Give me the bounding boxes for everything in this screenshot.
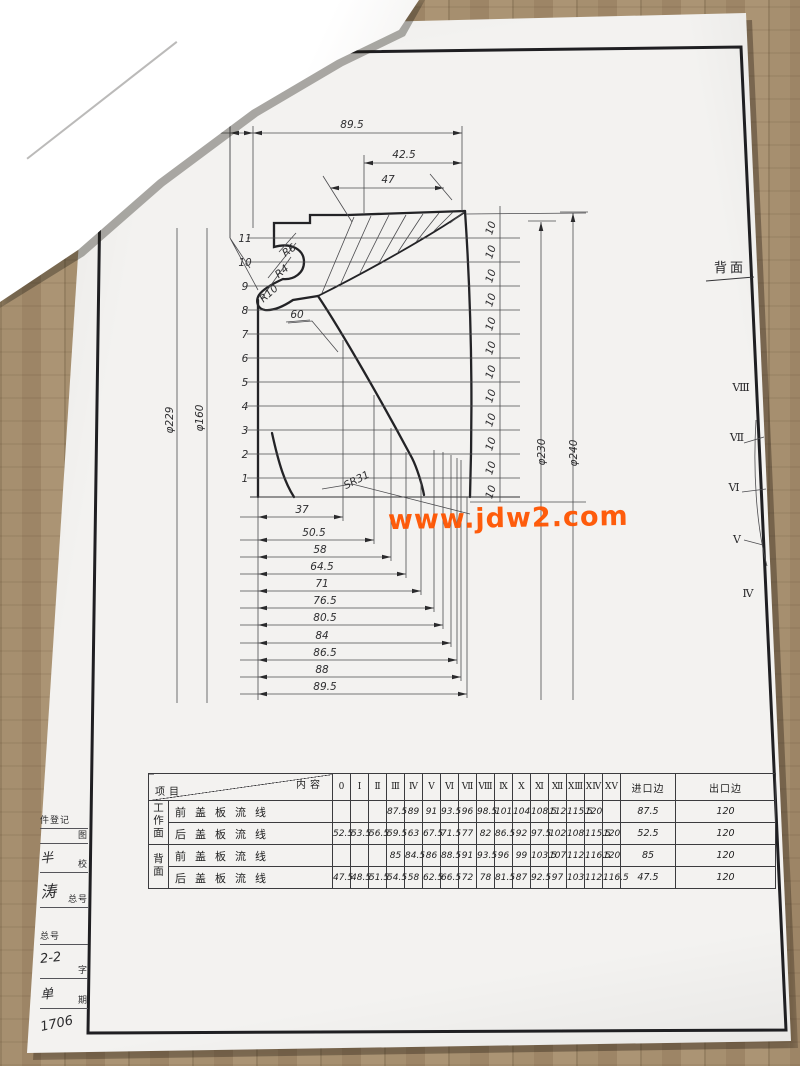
drawing-line bbox=[360, 215, 389, 273]
dimension-arrow bbox=[258, 658, 267, 663]
dimension-arrow bbox=[258, 515, 267, 520]
row-group-label: 工作面 bbox=[149, 801, 169, 845]
drawing-text: 5 bbox=[242, 377, 249, 389]
drawing-text: 2 bbox=[242, 449, 249, 461]
stamp-item: 件登记 bbox=[40, 817, 88, 829]
table-cell: 120 bbox=[676, 845, 776, 867]
table-cell bbox=[351, 845, 369, 867]
table-cell: 91 bbox=[423, 801, 441, 823]
drawing-text: 84 bbox=[315, 630, 328, 642]
stamp-item: 期 bbox=[40, 997, 88, 1009]
angle-label: 60 bbox=[290, 309, 304, 321]
table-cell: 52.5 bbox=[621, 823, 676, 845]
drawing-text: 42.5 bbox=[392, 149, 416, 161]
table-cell: 99 bbox=[513, 845, 531, 867]
stamp-item: 字 bbox=[40, 967, 88, 979]
dimension-arrow bbox=[435, 186, 444, 191]
drawing-text: 10 bbox=[483, 484, 499, 501]
drawing-text: φ240 bbox=[568, 439, 580, 466]
column-header: ⅩⅣ bbox=[585, 774, 603, 801]
column-header: Ⅺ bbox=[531, 774, 549, 801]
table-cell bbox=[369, 801, 387, 823]
drawing-text: φ229 bbox=[164, 406, 176, 433]
table-cell: 88.5 bbox=[441, 845, 459, 867]
back-face-label: 背面 bbox=[714, 261, 746, 276]
drawing-text: φ230 bbox=[536, 438, 548, 465]
drawing-text: 89.5 bbox=[340, 119, 364, 131]
column-header: 0 bbox=[333, 774, 351, 801]
table-cell: 78 bbox=[477, 867, 495, 889]
table-cell: 108 bbox=[567, 823, 585, 845]
dimension-arrow bbox=[258, 555, 267, 560]
table-cell: 84.5 bbox=[405, 845, 423, 867]
table-cell: 66.5 bbox=[441, 867, 459, 889]
table-cell: 93.5 bbox=[477, 845, 495, 867]
dimension-arrow bbox=[382, 555, 391, 560]
table-cell: 59.5 bbox=[387, 823, 405, 845]
drawing-text: 10 bbox=[483, 292, 499, 309]
drawing-text: 50.5 bbox=[302, 527, 326, 539]
table-cell: 97.5 bbox=[531, 823, 549, 845]
drawing-text: 58 bbox=[313, 544, 327, 556]
table-cell: 116.5 bbox=[585, 845, 603, 867]
drawing-text: 89.5 bbox=[313, 681, 337, 693]
table-cell: 107 bbox=[549, 845, 567, 867]
drawing-text: 1 bbox=[242, 473, 249, 485]
column-header: 进口边 bbox=[621, 774, 676, 801]
table-cell: 93.5 bbox=[441, 801, 459, 823]
table-cell: 97 bbox=[549, 867, 567, 889]
table-cell: 53.5 bbox=[351, 823, 369, 845]
table-cell: 47.5 bbox=[333, 867, 351, 889]
column-header: Ⅷ bbox=[477, 774, 495, 801]
dimension-arrow bbox=[425, 606, 434, 611]
dimension-arrow bbox=[539, 222, 544, 231]
drawing-text: 10 bbox=[483, 436, 499, 453]
drawing-text: 10 bbox=[483, 316, 499, 333]
dimension-arrow bbox=[253, 131, 262, 136]
drawing-text: 71 bbox=[315, 578, 328, 590]
table-cell: 71.5 bbox=[441, 823, 459, 845]
table-row: 后盖板流线52.553.556.559.56367.571.5778286.59… bbox=[149, 823, 776, 845]
table-cell bbox=[603, 801, 621, 823]
row-label: 后盖板流线 bbox=[169, 823, 333, 845]
table-cell: 120 bbox=[676, 823, 776, 845]
drawing-text: 10 bbox=[483, 364, 499, 381]
table-cell: 120 bbox=[585, 801, 603, 823]
drawing-text: 10 bbox=[483, 460, 499, 477]
drawing-text: Ⅴ bbox=[732, 533, 742, 546]
table-cell: 91 bbox=[459, 845, 477, 867]
table-cell: 96 bbox=[495, 845, 513, 867]
table-cell bbox=[369, 845, 387, 867]
dimension-arrow bbox=[258, 692, 267, 697]
column-header: Ⅵ bbox=[441, 774, 459, 801]
drawing-text: Ⅵ bbox=[727, 481, 739, 494]
drawing-text: 10 bbox=[483, 388, 499, 405]
watermark-text: www.jdw2.com bbox=[388, 501, 629, 536]
dimension-arrow bbox=[258, 623, 267, 628]
table-cell: 115.5 bbox=[585, 823, 603, 845]
back-face-note: 背面 bbox=[706, 261, 754, 281]
column-header: ⅩⅢ bbox=[567, 774, 585, 801]
table-row: 背面前盖板流线8584.58688.59193.59699103.5107112… bbox=[149, 845, 776, 867]
table-cell: 56.5 bbox=[369, 823, 387, 845]
table-cell: 89 bbox=[405, 801, 423, 823]
table-cell: 98.5 bbox=[477, 801, 495, 823]
dimension-arrow bbox=[458, 692, 467, 697]
drawing-text: 76.5 bbox=[313, 595, 337, 607]
column-header: Ⅴ bbox=[423, 774, 441, 801]
drawing-text: 80.5 bbox=[313, 612, 337, 624]
table-cell: 96 bbox=[459, 801, 477, 823]
row-label: 前盖板流线 bbox=[169, 845, 333, 867]
row-group-label: 背面 bbox=[149, 845, 169, 889]
drawing-text: 10 bbox=[483, 220, 499, 237]
table-cell: 112 bbox=[549, 801, 567, 823]
table-cell: 63 bbox=[405, 823, 423, 845]
stamp-item: 图 bbox=[40, 832, 88, 844]
row-label: 前盖板流线 bbox=[169, 801, 333, 823]
stamp-item: 校 bbox=[40, 861, 88, 873]
table-cell: 108.5 bbox=[531, 801, 549, 823]
dimension-arrow bbox=[334, 515, 343, 520]
column-header: Ⅳ bbox=[405, 774, 423, 801]
section-marks: ⅧⅦⅥⅤⅣ bbox=[727, 381, 754, 600]
drawing-text: 3 bbox=[242, 425, 249, 437]
drawing-text: 86.5 bbox=[313, 647, 337, 659]
column-header: 出口边 bbox=[676, 774, 776, 801]
drawing-text: Ⅷ bbox=[731, 381, 749, 394]
column-header: Ⅻ bbox=[549, 774, 567, 801]
table-cell: 58 bbox=[405, 867, 423, 889]
table-cell: 72 bbox=[459, 867, 477, 889]
dimension-arrow bbox=[452, 675, 461, 680]
drawing-line bbox=[466, 213, 586, 214]
table-cell bbox=[333, 801, 351, 823]
table-cell: 120 bbox=[603, 845, 621, 867]
drawing-line bbox=[322, 217, 354, 293]
dimension-arrow bbox=[258, 572, 267, 577]
streamline-data-table: 内容项目0ⅠⅡⅢⅣⅤⅥⅦⅧⅨⅩⅪⅫⅩⅢⅩⅣⅩⅤ进口边出口边工作面前盖板流线87.… bbox=[148, 773, 776, 889]
table-cell: 48.5 bbox=[351, 867, 369, 889]
table-row: 后盖板流线47.548.551.554.55862.566.5727881.58… bbox=[149, 867, 776, 889]
drawing-text: 47 bbox=[381, 174, 395, 186]
dimension-arrow bbox=[258, 641, 267, 646]
stamp-item: 总号 bbox=[40, 896, 88, 908]
dimension-arrow bbox=[453, 161, 462, 166]
table-cell: 116.5 bbox=[603, 867, 621, 889]
stamp-item: 总号 bbox=[40, 933, 88, 945]
dimension-arrow bbox=[365, 538, 374, 543]
table-cell: 52.5 bbox=[333, 823, 351, 845]
paper-crease bbox=[0, 0, 177, 160]
dimension-lines bbox=[177, 126, 588, 703]
drawing-text: 10 bbox=[483, 340, 499, 357]
dimension-arrow bbox=[442, 641, 451, 646]
streamline-table: 内容项目0ⅠⅡⅢⅣⅤⅥⅦⅧⅨⅩⅪⅫⅩⅢⅩⅣⅩⅤ进口边出口边工作面前盖板流线87.… bbox=[148, 773, 776, 889]
table-cell: 85 bbox=[621, 845, 676, 867]
dimension-arrow bbox=[364, 161, 373, 166]
table-cell: 103 bbox=[567, 867, 585, 889]
table-cell: 82 bbox=[477, 823, 495, 845]
dimension-arrow bbox=[258, 675, 267, 680]
dimension-arrow bbox=[448, 658, 457, 663]
table-row: 工作面前盖板流线87.5899193.59698.5101104108.5112… bbox=[149, 801, 776, 823]
dimension-arrow bbox=[258, 589, 267, 594]
table-cell: 86.5 bbox=[495, 823, 513, 845]
column-header: Ⅶ bbox=[459, 774, 477, 801]
dimension-arrow bbox=[412, 589, 421, 594]
table-cell: 101 bbox=[495, 801, 513, 823]
table-cell: 102 bbox=[549, 823, 567, 845]
table-cell: 104 bbox=[513, 801, 531, 823]
table-cell: 112 bbox=[567, 845, 585, 867]
corner-top-label: 内容 bbox=[296, 776, 324, 791]
drawing-text: 8 bbox=[242, 305, 249, 317]
column-header: Ⅱ bbox=[369, 774, 387, 801]
table-cell: 51.5 bbox=[369, 867, 387, 889]
drawing-text: 10 bbox=[483, 244, 499, 261]
column-header: ⅩⅤ bbox=[603, 774, 621, 801]
drawing-text: φ160 bbox=[194, 404, 206, 431]
table-cell: 87.5 bbox=[387, 801, 405, 823]
column-header: Ⅲ bbox=[387, 774, 405, 801]
table-cell bbox=[333, 845, 351, 867]
table-cell: 92.5 bbox=[531, 867, 549, 889]
drawing-text: 11 bbox=[238, 233, 251, 245]
table-corner-cell: 内容项目 bbox=[149, 774, 333, 801]
table-cell: 115.5 bbox=[567, 801, 585, 823]
table-cell: 103.5 bbox=[531, 845, 549, 867]
drawing-text: 6 bbox=[242, 353, 249, 365]
table-cell: 120 bbox=[676, 867, 776, 889]
table-cell: 92 bbox=[513, 823, 531, 845]
drawing-text: R6 bbox=[280, 241, 299, 259]
table-cell: 120 bbox=[676, 801, 776, 823]
drawing-text: 7 bbox=[242, 329, 249, 341]
table-cell: 54.5 bbox=[387, 867, 405, 889]
corner-bottom-label: 项目 bbox=[155, 783, 183, 798]
drawing-line bbox=[341, 216, 371, 283]
dimension-arrow bbox=[397, 572, 406, 577]
drawing-text: 88 bbox=[315, 664, 329, 676]
drawing-text: 37 bbox=[295, 504, 309, 516]
column-header: Ⅹ bbox=[513, 774, 531, 801]
table-cell: 62.5 bbox=[423, 867, 441, 889]
drawing-text: Ⅳ bbox=[743, 587, 755, 600]
table-cell: 85 bbox=[387, 845, 405, 867]
row-label: 后盖板流线 bbox=[169, 867, 333, 889]
drawing-text: 64.5 bbox=[310, 561, 334, 573]
table-cell: 87.5 bbox=[621, 801, 676, 823]
drawing-text: 10 bbox=[483, 268, 499, 285]
table-cell: 112 bbox=[585, 867, 603, 889]
column-header: Ⅰ bbox=[351, 774, 369, 801]
table-cell: 81.5 bbox=[495, 867, 513, 889]
drawing-text: 10 bbox=[483, 412, 499, 429]
drawing-text: 4 bbox=[242, 401, 249, 413]
table-cell: 120 bbox=[603, 823, 621, 845]
drawing-line bbox=[450, 212, 464, 223]
dimension-arrow bbox=[244, 131, 253, 136]
dimension-arrow bbox=[434, 623, 443, 628]
sphere-radius-label: SR31 bbox=[342, 469, 372, 492]
table-cell bbox=[351, 801, 369, 823]
table-cell: 67.5 bbox=[423, 823, 441, 845]
dimension-arrow bbox=[258, 538, 267, 543]
dimension-arrow bbox=[258, 606, 267, 611]
dimension-arrow bbox=[453, 131, 462, 136]
table-cell: 77 bbox=[459, 823, 477, 845]
column-header: Ⅸ bbox=[495, 774, 513, 801]
drawing-text: Ⅶ bbox=[729, 431, 744, 444]
table-cell: 86 bbox=[423, 845, 441, 867]
table-cell: 87 bbox=[513, 867, 531, 889]
drawing-text: 9 bbox=[242, 281, 249, 293]
dimension-arrow bbox=[571, 213, 576, 222]
